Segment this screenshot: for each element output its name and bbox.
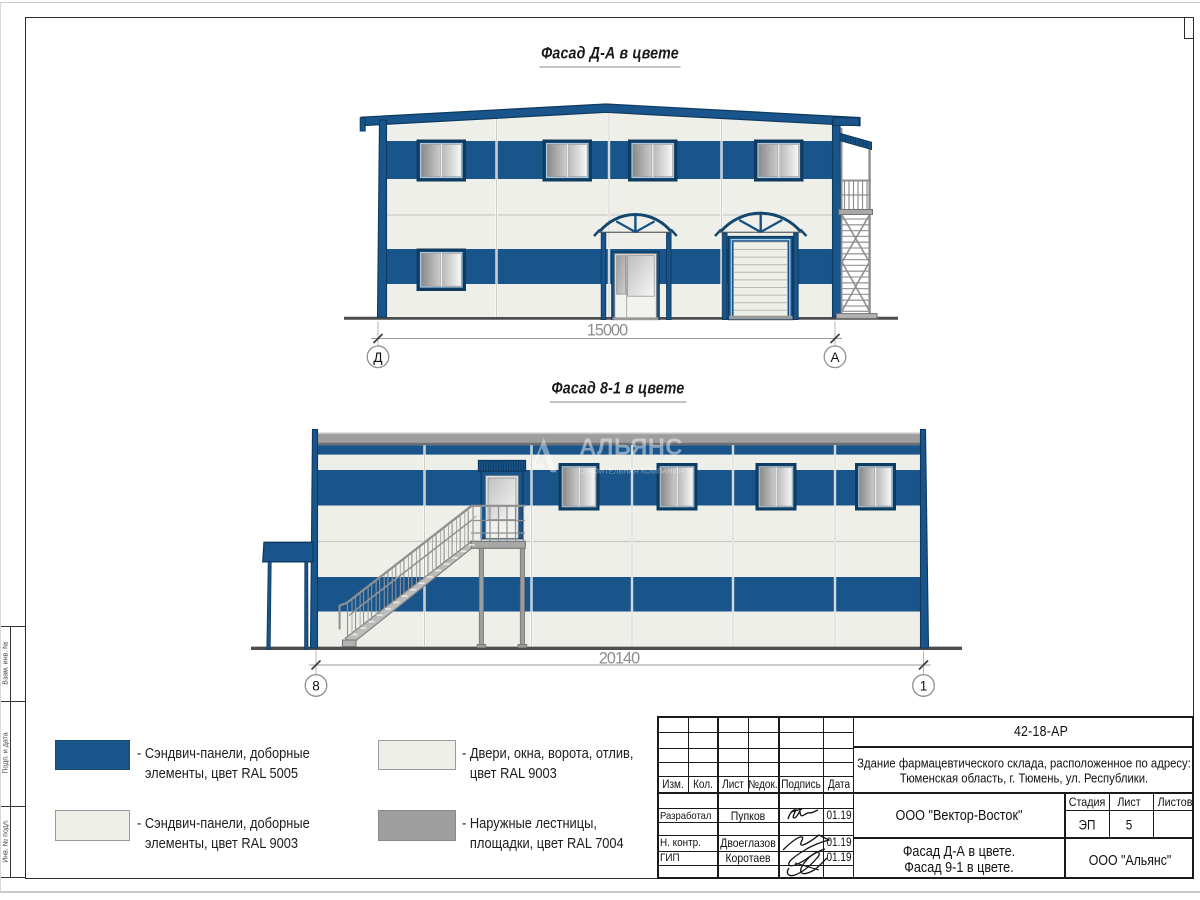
svg-text:20140: 20140 bbox=[599, 650, 640, 668]
svg-text:А: А bbox=[830, 350, 839, 365]
svg-text:8: 8 bbox=[312, 679, 320, 694]
svg-text:15000: 15000 bbox=[587, 322, 628, 340]
svg-text:1: 1 bbox=[920, 679, 928, 694]
svg-text:Д: Д bbox=[373, 350, 382, 365]
